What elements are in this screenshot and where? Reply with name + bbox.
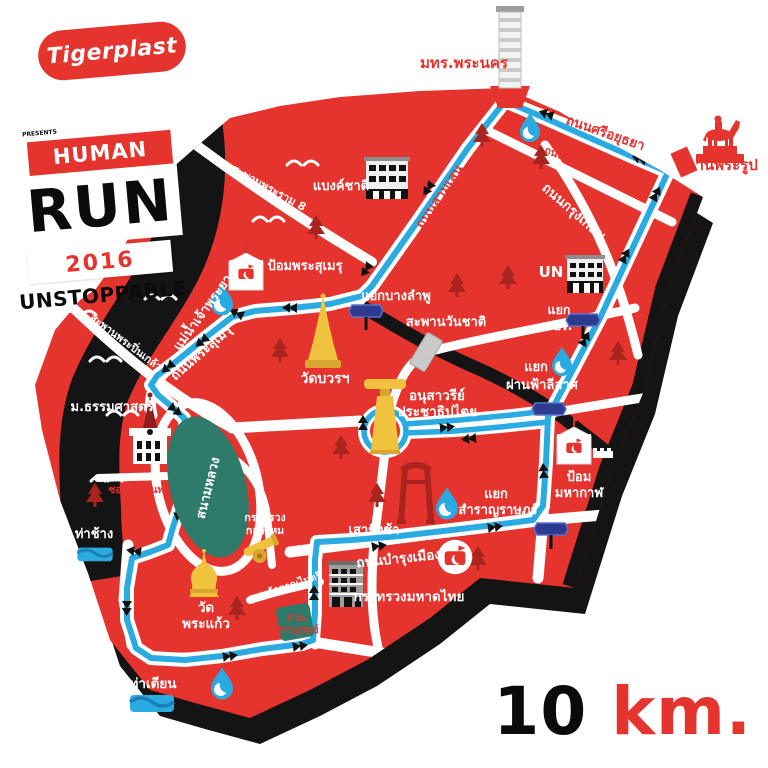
camera-badge-icon	[438, 540, 473, 575]
label-un: UN	[539, 263, 564, 281]
label-bank-of-thailand: แบงค์ชาติ	[313, 178, 369, 194]
bank-of-thailand-icon	[364, 157, 410, 199]
distance-unit: km.	[611, 673, 752, 750]
label-jpr-1: แยก	[548, 302, 571, 317]
label-phra-chan: ซอยพระจันทร์	[109, 484, 170, 496]
label-tha-chang: ท่าช้าง	[75, 526, 113, 542]
label-wanchat: สะพานวันชาติ	[406, 315, 486, 330]
poster: มทร.พระนคร ถนนศรีอยุธยา ถนนพิษณุโลก ลานพ…	[0, 0, 768, 768]
label-defence-2: กลาโหม	[246, 524, 284, 537]
tigerplast-logo-text: Tigerplast	[46, 33, 178, 69]
label-wpk-1: วัด	[198, 600, 214, 616]
mahakan-wall-icon	[593, 448, 613, 458]
year-banner-text: 2016	[64, 247, 135, 278]
distance-value: 10	[493, 673, 587, 750]
label-saranrom-1: สวน	[287, 613, 306, 624]
label-giant-swing: เสาชิงช้า	[349, 522, 400, 538]
label-wat-bowon: วัดบวรฯ	[300, 371, 349, 387]
un-building-icon	[565, 255, 605, 293]
label-jpr-2: จปร.	[546, 318, 573, 333]
label-thammasat: ม.ธรรมศาสตร์	[71, 399, 154, 415]
label-rmutp: มทร.พระนคร	[420, 54, 509, 72]
label-wpk-2: พระแก้ว	[182, 616, 230, 632]
tha-tien-pier-icon	[130, 695, 174, 712]
label-defence-1: กระทรวง	[244, 512, 285, 524]
label-interior: กระทรวงมหาดไทย	[354, 588, 465, 605]
label-banglamphu: แยกบางลำพู	[361, 288, 431, 304]
run-banner: RUN	[17, 163, 183, 249]
label-saranrom-2: สราญรมย์	[275, 624, 319, 636]
label-mahakan-1: ป้อม	[567, 469, 592, 485]
label-samranrat-1: แยก	[484, 487, 508, 502]
label-democracy-1: อนุสาวรีย์	[409, 387, 465, 404]
label-phra-sumen-fort: ป้อมพระสุเมรุ	[267, 258, 342, 274]
label-democracy-2: ประชาธิปไตย	[397, 403, 477, 420]
label-phanfa-1: แยก	[524, 360, 548, 375]
tha-chang-pier-icon	[77, 548, 112, 562]
label-royal-plaza: ลานพระรูป	[686, 156, 757, 175]
route-map: มทร.พระนคร ถนนศรีอยุธยา ถนนพิษณุโลก ลานพ…	[0, 0, 768, 768]
label-samranrat-2: สำราญราษฎร์	[458, 502, 537, 518]
run-banner-text: RUN	[25, 171, 176, 242]
distance-label: 10 km.	[493, 673, 752, 750]
label-phanfa-2: ผ่านฟ้าลีลาศ	[506, 377, 579, 393]
human-banner-text: HUMAN	[52, 137, 148, 169]
label-mahakan-2: มหากาฬ	[555, 486, 605, 501]
label-tha-tien: ท่าเตียน	[130, 676, 178, 692]
